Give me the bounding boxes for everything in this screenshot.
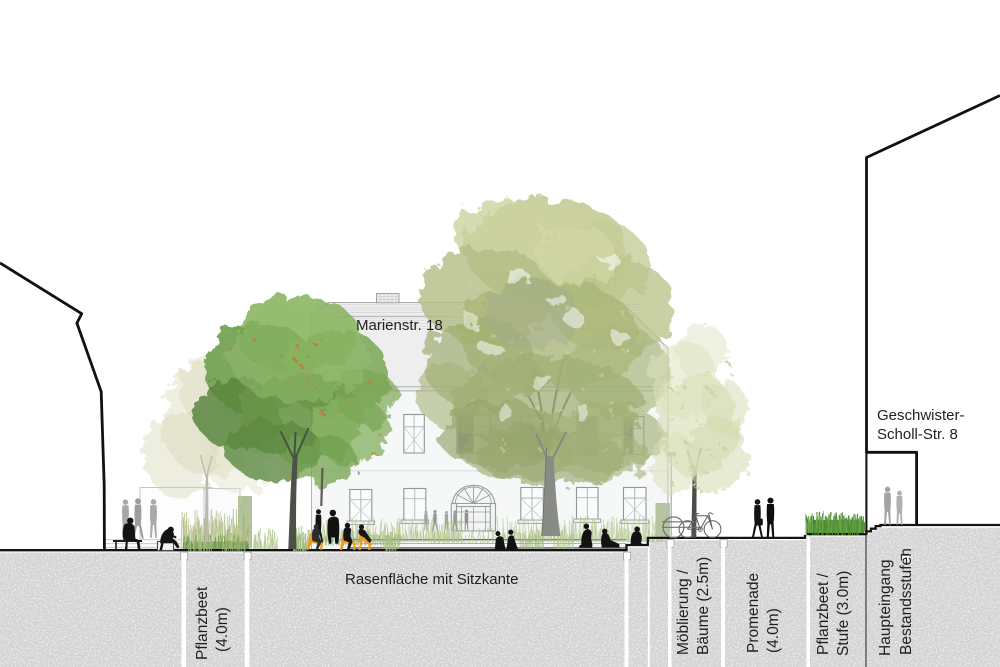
svg-text:Bäume (2.5m): Bäume (2.5m) [695, 557, 712, 655]
svg-text:Pflanzbeet /: Pflanzbeet / [815, 572, 832, 655]
svg-text:Promenade: Promenade [745, 573, 762, 653]
svg-text:Marienstr. 18: Marienstr. 18 [356, 317, 443, 334]
svg-text:Geschwister-: Geschwister- [877, 407, 965, 424]
svg-text:Bestandsstufen: Bestandsstufen [898, 548, 915, 655]
svg-text:Scholl-Str. 8: Scholl-Str. 8 [877, 426, 958, 443]
svg-text:(4.0m): (4.0m) [765, 608, 782, 653]
svg-text:Möblierung /: Möblierung / [675, 569, 692, 655]
svg-text:Stufe (3.0m): Stufe (3.0m) [835, 571, 852, 656]
svg-text:Haupteingang: Haupteingang [877, 559, 894, 656]
svg-text:Pflanzbeet: Pflanzbeet [194, 586, 211, 660]
svg-text:Rasenfläche mit Sitzkante: Rasenfläche mit Sitzkante [345, 571, 518, 588]
svg-text:(4.0m): (4.0m) [214, 607, 231, 652]
